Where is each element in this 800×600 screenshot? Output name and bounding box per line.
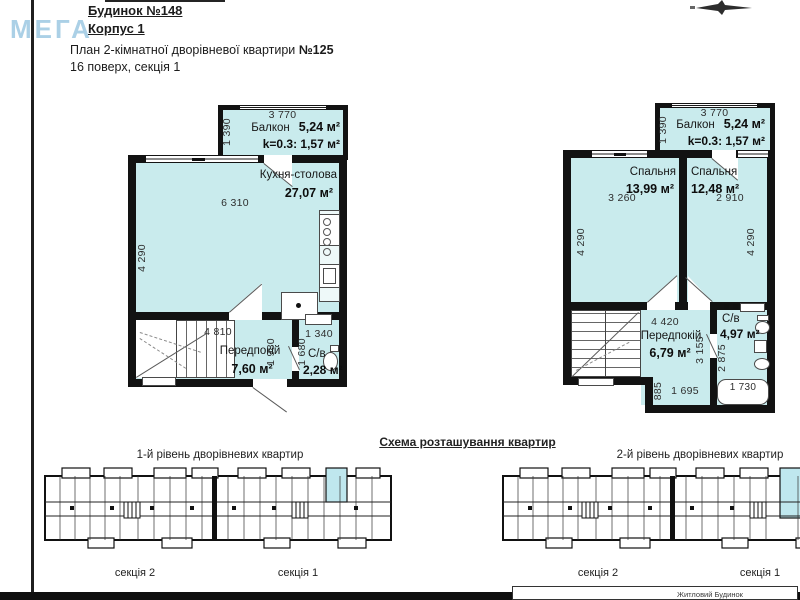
level2-balcony-label-row: Балкон 5,24 м²	[660, 117, 765, 131]
level1-entrance-gap	[253, 379, 287, 387]
mega-watermark: МЕГА	[10, 14, 93, 45]
level1-hall-name: Передпокій	[208, 345, 292, 357]
level2-hall-area: 6,79 м²	[638, 346, 702, 360]
level2-bath-vent-dot	[724, 304, 729, 309]
level2-balcony-name: Балкон	[676, 119, 715, 131]
scheme2-section2-label: секція 2	[558, 567, 638, 579]
bathtub-icon: 1 730	[717, 379, 769, 405]
level1-hall-height-dim: 1 980	[265, 332, 277, 372]
stove-icon	[319, 214, 340, 246]
highlighted-apartment-level2	[780, 468, 800, 518]
level2-bedroom-divider-wall	[679, 158, 687, 302]
level1-kitchen-window-tick	[192, 158, 205, 161]
bedroom-right-name: Спальня	[691, 166, 763, 178]
stove-burner-icon	[323, 218, 331, 226]
level1-toilet-tank	[330, 345, 339, 352]
kitchen-height-dim: 4 290	[136, 238, 148, 278]
level2-bath-name: С/в	[722, 313, 740, 325]
highlighted-apartment-level1	[326, 468, 347, 502]
level2-balcony-door-gap	[712, 150, 736, 158]
level1-balcony-door-gap	[264, 155, 292, 163]
top-cropped-line	[105, 0, 225, 2]
kitchen-name: Кухня-столова	[225, 169, 337, 181]
bedroom-left-height-dim: 4 290	[575, 222, 587, 262]
level2-bath-vent-dot2	[733, 304, 738, 309]
level2-hall-bottomleft-dim: 885	[652, 376, 664, 406]
bedroom-left-name: Спальня	[598, 166, 676, 178]
footer-title-box: Житловий Будинок	[512, 586, 798, 600]
kitchen-sink-basin	[323, 268, 336, 284]
level2-washer-icon	[740, 303, 765, 312]
developer-logo-icon	[690, 0, 754, 16]
bedroom-right-door-gap	[688, 302, 712, 310]
building-scheme-level2	[500, 464, 800, 556]
level2-bath-sink-icon	[754, 358, 770, 370]
level2-bottom-wall	[645, 405, 775, 413]
scheme1-section1-label: секція 1	[258, 567, 338, 579]
building-number: Будинок №148	[88, 3, 182, 18]
floor-info: 16 поверх, секція 1	[70, 60, 180, 74]
level2-washing-machine-icon	[754, 340, 767, 353]
level1-bath-sink	[305, 314, 332, 325]
level2-hall-height-dim: 3 155	[694, 330, 706, 370]
plan-title-number: №125	[299, 43, 334, 57]
level1-interior-wall-left	[136, 312, 229, 320]
stove-burner-icon	[323, 228, 331, 236]
plan-title-text: План 2-кімнатної дворівневої квартири	[70, 43, 299, 57]
scheme2-section1-label: секція 1	[720, 567, 800, 579]
level1-hall-area: 7,60 м²	[214, 362, 290, 376]
plan-title: План 2-кімнатної дворівневої квартири №1…	[70, 43, 334, 57]
page-left-border	[31, 0, 34, 592]
level2-stair-landing	[578, 378, 614, 386]
level1-balcony-name: Балкон	[251, 122, 290, 134]
stove-burner-icon	[323, 248, 331, 256]
scheme-caption-level2: 2-й рівень дворівневих квартир	[575, 449, 800, 461]
level2-balcony-coef: k=0.3: 1,57 м²	[655, 134, 765, 148]
bedroom-right-height-dim: 4 290	[745, 222, 757, 262]
scheme-caption-level1: 1-й рівень дворівневих квартир	[95, 449, 345, 461]
kitchen-width-dim: 6 310	[200, 197, 270, 209]
bedroom-right-width-dim: 2 910	[705, 192, 755, 204]
block-number: Корпус 1	[88, 21, 145, 36]
level1-hall-width-dim: 4 810	[192, 326, 244, 338]
level1-balcony-label-row: Балкон 5,24 м²	[235, 120, 340, 134]
level1-stair-landing	[142, 377, 176, 386]
level1-hall-door-gap	[229, 312, 262, 320]
floor-plan-document: { "header": { "building_no": "Будинок №1…	[0, 0, 800, 600]
level2-hall-width-dim: 4 420	[638, 316, 692, 328]
scheme1-section2-label: секція 2	[95, 567, 175, 579]
footer-title-text: Житловий Будинок	[513, 587, 797, 599]
level2-bedroom-right-window	[738, 150, 768, 158]
level2-bedroom-left-window-tick	[614, 153, 626, 156]
level2-bath-height-dim: 2 875	[716, 338, 728, 378]
level1-bath-area: 2,28 м²	[303, 363, 343, 377]
level2-balcony-area: 5,24 м²	[724, 117, 765, 131]
building-scheme-level1	[42, 464, 394, 556]
bathtub-width-dim: 1 730	[718, 382, 768, 393]
bedroom-left-width-dim: 3 260	[598, 192, 646, 204]
kitchen-table-dot	[296, 303, 301, 308]
level2-hall-bottom-dim: 1 695	[664, 385, 706, 397]
schemes-title: Схема розташування квартир	[340, 435, 595, 449]
level2-left-wall-lower	[563, 310, 571, 385]
bedroom-left-door-gap	[647, 302, 675, 310]
level1-bath-name: С/в	[308, 348, 326, 360]
level1-balcony-coef: k=0.3: 1,57 м²	[230, 137, 340, 151]
stove-burner-icon	[323, 238, 331, 246]
level1-balcony-area: 5,24 м²	[299, 120, 340, 134]
